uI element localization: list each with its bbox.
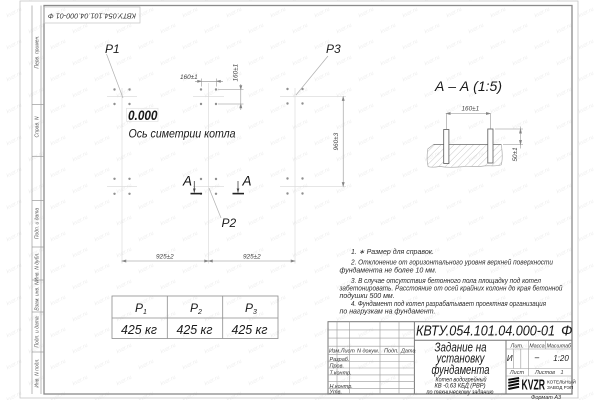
svg-text:ЗАВОД РЭП: ЗАВОД РЭП xyxy=(547,385,573,390)
svg-text:Дата: Дата xyxy=(400,349,416,355)
svg-text:N докум.: N докум. xyxy=(357,349,379,355)
svg-text:925±2: 925±2 xyxy=(243,254,261,261)
svg-text:KVZR: KVZR xyxy=(522,377,546,394)
svg-text:Справ. N: Справ. N xyxy=(35,116,41,137)
svg-text:Р1: Р1 xyxy=(105,42,120,56)
svg-text:Инв. N подл.: Инв. N подл. xyxy=(35,358,41,387)
svg-text:925±2: 925±2 xyxy=(156,254,174,261)
svg-text:Р3: Р3 xyxy=(326,42,341,56)
svg-text:Подп.: Подп. xyxy=(384,349,399,355)
svg-text:Масштаб: Масштаб xyxy=(547,344,572,350)
svg-text:Пров.: Пров. xyxy=(330,364,345,370)
svg-text:160±1: 160±1 xyxy=(232,63,239,81)
svg-text:Котел водогрейный: Котел водогрейный xyxy=(436,376,488,383)
svg-text:А: А xyxy=(182,174,192,189)
svg-text:КВТУ.054.101.04.000-01 Ф: КВТУ.054.101.04.000-01 Ф xyxy=(48,11,136,20)
svg-text:фундамента не более 10 мм.: фундамента не более 10 мм. xyxy=(340,266,437,274)
svg-text:Формат А3: Формат А3 xyxy=(531,395,562,400)
svg-text:Р: Р xyxy=(135,301,143,315)
svg-text:425 кг: 425 кг xyxy=(121,322,158,337)
svg-text:Р: Р xyxy=(190,301,198,315)
svg-text:Изм.Лист: Изм.Лист xyxy=(329,349,355,355)
svg-text:425 кг: 425 кг xyxy=(232,322,269,337)
svg-text:960±3: 960±3 xyxy=(333,132,340,150)
svg-text:А: А xyxy=(242,174,252,189)
svg-text:–: – xyxy=(534,353,540,362)
svg-text:Листов: Листов xyxy=(534,370,555,376)
svg-text:КВ -0,63 КБД (РВР): КВ -0,63 КБД (РВР) xyxy=(435,384,486,390)
svg-text:подушки 500 мм.: подушки 500 мм. xyxy=(340,292,395,300)
svg-text:Лит.: Лит. xyxy=(510,344,524,350)
svg-text:забетонировать. Расстояние от: забетонировать. Расстояние от осей крайн… xyxy=(339,285,563,293)
svg-text:Ось симетрии котла: Ось симетрии котла xyxy=(129,129,236,141)
svg-text:Р: Р xyxy=(245,301,253,315)
svg-text:Масса: Масса xyxy=(529,344,544,350)
svg-text:4. Фундамент под котел разраба: 4. Фундамент под котел разрабатывает про… xyxy=(351,300,546,308)
svg-text:Р2: Р2 xyxy=(222,216,237,230)
svg-text:50±1: 50±1 xyxy=(512,147,519,162)
svg-text:160±1: 160±1 xyxy=(180,74,198,81)
svg-text:Разраб.: Разраб. xyxy=(330,357,350,363)
svg-text:по нагрузкам на фундамент.: по нагрузкам на фундамент. xyxy=(340,307,436,315)
svg-text:Утв.: Утв. xyxy=(329,390,343,396)
svg-text:КВТУ.054.101.04.000-01: КВТУ.054.101.04.000-01 xyxy=(416,324,555,340)
svg-text:Т.контр.: Т.контр. xyxy=(330,370,352,376)
svg-text:Взам. инв. N: Взам. инв. N xyxy=(35,281,41,311)
svg-text:0.000: 0.000 xyxy=(128,107,158,123)
svg-text:Подп. и дата: Подп. и дата xyxy=(35,316,41,348)
svg-text:КОТЕЛЬНЫЙ: КОТЕЛЬНЫЙ xyxy=(547,378,576,385)
svg-text:Ф: Ф xyxy=(561,324,573,340)
svg-text:2. Отклонение от горизонтально: 2. Отклонение от горизонтального уровня … xyxy=(350,259,553,267)
svg-text:А – А (1:5): А – А (1:5) xyxy=(434,78,502,94)
svg-text:1: 1 xyxy=(143,309,147,316)
svg-text:2: 2 xyxy=(197,309,202,316)
svg-text:Инв. N дубл.: Инв. N дубл. xyxy=(35,253,41,282)
svg-text:1: 1 xyxy=(560,370,563,376)
svg-text:фундамента: фундамента xyxy=(432,362,490,377)
svg-text:по техническому заданию: по техническому заданию xyxy=(427,390,494,396)
svg-text:425 кг: 425 кг xyxy=(177,322,214,337)
svg-text:160±1: 160±1 xyxy=(462,105,480,112)
svg-text:Перв. примен.: Перв. примен. xyxy=(35,35,41,68)
svg-text:1. ∗ Размер для справок.: 1. ∗ Размер для справок. xyxy=(351,248,434,256)
svg-text:1:20: 1:20 xyxy=(553,354,569,363)
svg-text:Лист: Лист xyxy=(509,370,525,376)
svg-text:И: И xyxy=(507,354,513,363)
svg-text:Подп. и дата: Подп. и дата xyxy=(35,208,41,240)
svg-text:3. В случае отсутствия бетонно: 3. В случае отсутствия бетонного пола пл… xyxy=(351,277,541,285)
svg-text:3: 3 xyxy=(253,309,257,316)
